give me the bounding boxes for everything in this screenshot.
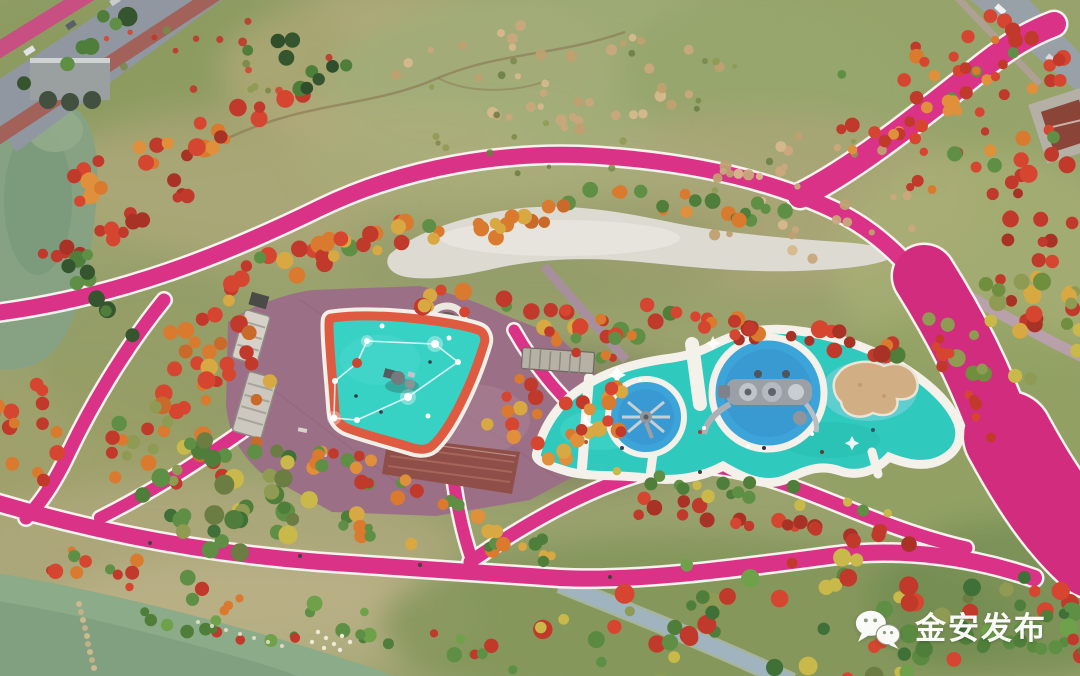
- aerial-park-photo: 金安发布: [0, 0, 1080, 676]
- park-scene: [0, 0, 1080, 676]
